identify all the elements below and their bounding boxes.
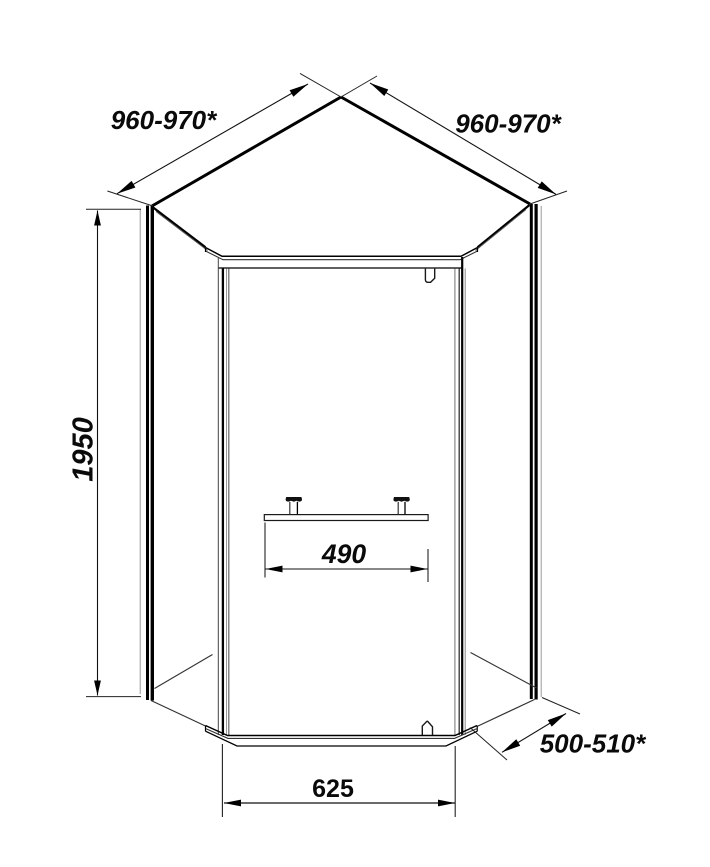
svg-text:625: 625 — [312, 775, 354, 803]
svg-text:1950: 1950 — [68, 417, 100, 482]
svg-text:500-510*: 500-510* — [540, 729, 647, 759]
svg-text:490: 490 — [321, 539, 366, 569]
svg-text:960-970*: 960-970* — [455, 109, 562, 139]
svg-text:960-970*: 960-970* — [111, 105, 218, 135]
